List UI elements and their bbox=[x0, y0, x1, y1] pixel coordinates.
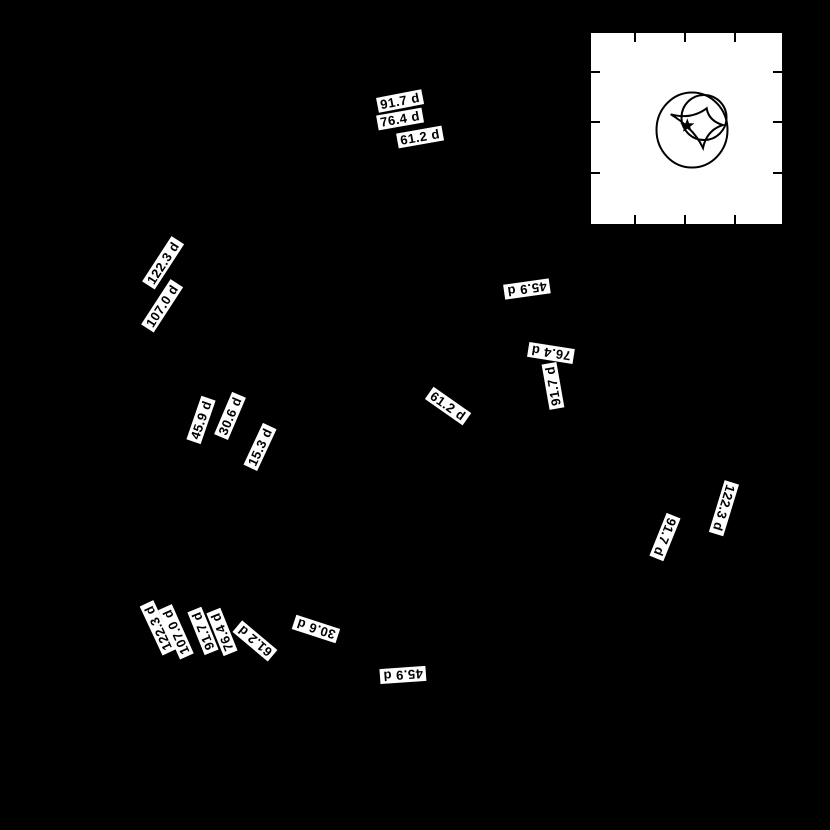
contour-label: 61.2 d bbox=[425, 387, 471, 426]
contour-label: 15.3 d bbox=[244, 423, 277, 471]
contour-label: 91.7 d bbox=[542, 362, 565, 410]
contour-label: 30.6 d bbox=[214, 392, 246, 440]
contour-label: 45.9 d bbox=[503, 278, 551, 299]
contour-label: 76.4 d bbox=[527, 342, 575, 364]
contour-label: 107.0 d bbox=[141, 279, 183, 332]
caustic-inset-canvas bbox=[588, 30, 785, 227]
contour-label: 30.6 d bbox=[292, 615, 340, 643]
contour-label: 45.9 d bbox=[186, 396, 215, 444]
contour-label: 122.3 d bbox=[709, 480, 739, 536]
contour-label: 91.7 d bbox=[649, 513, 680, 561]
source-trajectory-circle-small bbox=[682, 95, 727, 140]
caustic-curve bbox=[671, 108, 723, 148]
contour-label: 61.2 d bbox=[233, 621, 278, 662]
caustic-inset bbox=[588, 30, 785, 227]
contour-label: 61.2 d bbox=[396, 126, 444, 149]
contour-label: 45.9 d bbox=[380, 666, 427, 684]
source-trajectory-circle-large bbox=[657, 93, 728, 168]
contour-label: 122.3 d bbox=[142, 236, 184, 289]
main-plot: 91.7 d76.4 d61.2 d122.3 d107.0 d45.9 d30… bbox=[0, 0, 830, 830]
